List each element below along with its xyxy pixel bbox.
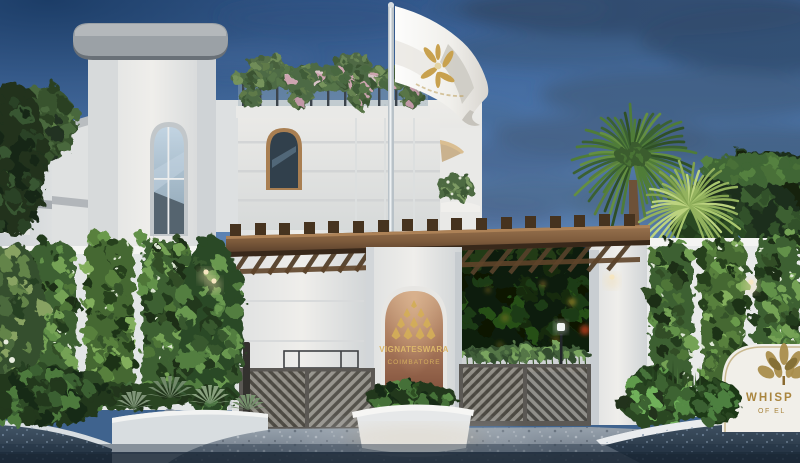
svg-text:WHISP: WHISP xyxy=(746,392,794,404)
svg-text:COIMBATORE: COIMBATORE xyxy=(387,359,440,366)
svg-text:VIGNATESWARA: VIGNATESWARA xyxy=(379,345,449,354)
svg-text:OF EL: OF EL xyxy=(758,408,786,415)
